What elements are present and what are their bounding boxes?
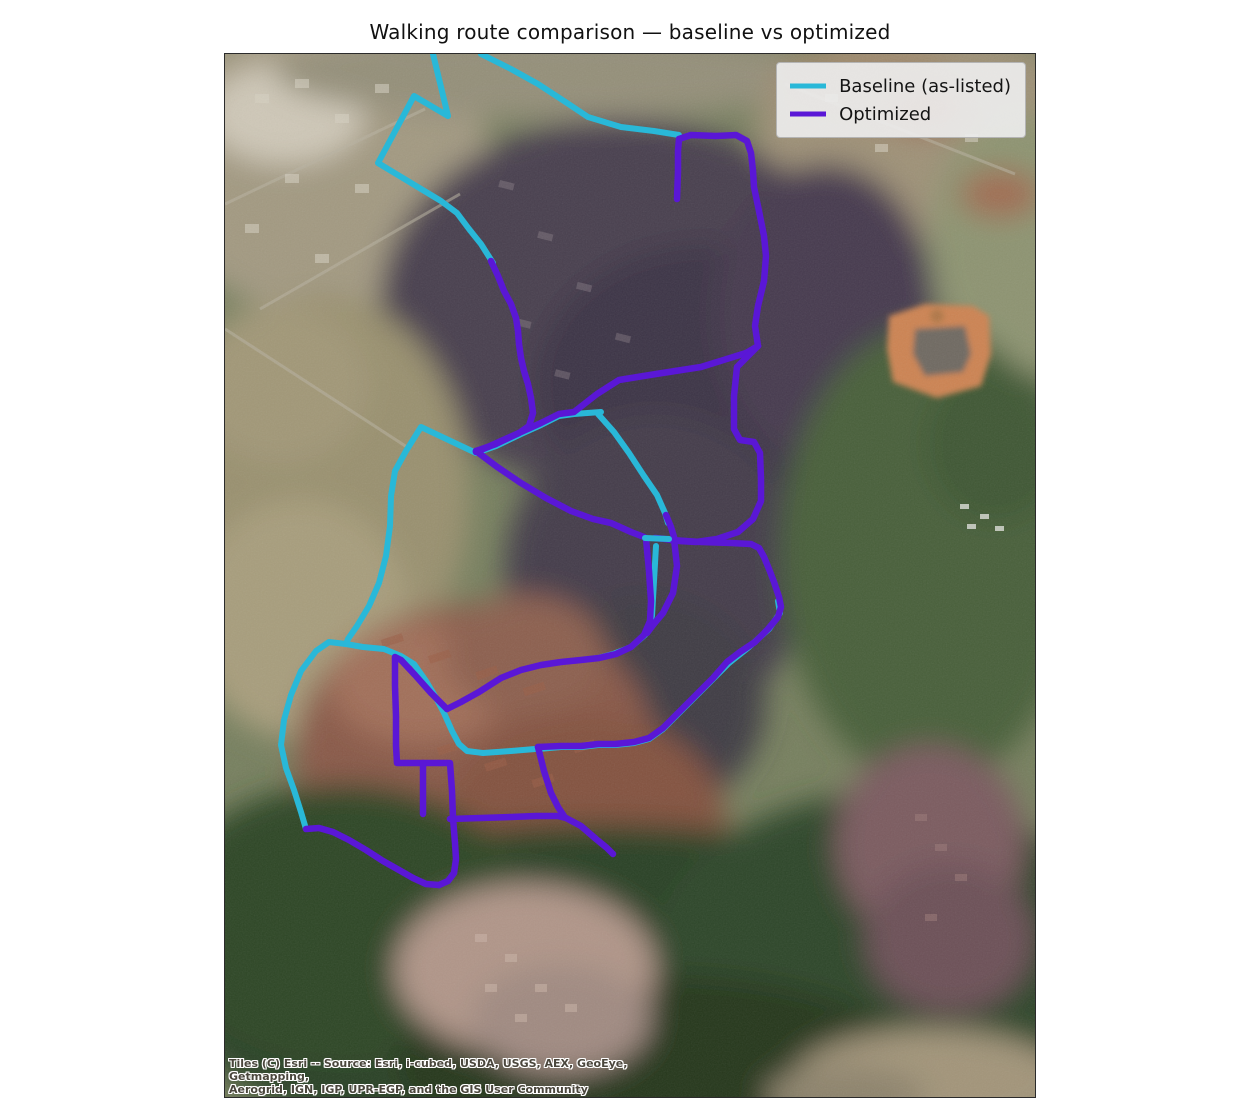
legend-label-optimized: Optimized [839,104,931,125]
baseline-route-junction-crossing [645,538,669,539]
figure: Walking route comparison — baseline vs o… [0,0,1260,1120]
map-canvas: Baseline (as-listed) Optimized Tiles (C)… [224,53,1036,1098]
legend-item-baseline: Baseline (as-listed) [789,72,1011,100]
attribution-line1: Tiles (C) Esri -- Source: Esri, i-cubed,… [229,1057,627,1083]
legend-label-baseline: Baseline (as-listed) [839,76,1011,97]
map-image [225,54,1036,1098]
tile-attribution: Tiles (C) Esri -- Source: Esri, i-cubed,… [229,1057,709,1096]
baseline-swatch-icon [789,82,827,90]
optimized-swatch-icon [789,110,827,118]
legend-item-optimized: Optimized [789,100,1011,128]
map-terrain [225,54,1036,1098]
attribution-line2: Aerogrid, IGN, IGP, UPR-EGP, and the GIS… [229,1083,588,1096]
page-title: Walking route comparison — baseline vs o… [224,20,1036,44]
legend: Baseline (as-listed) Optimized [776,62,1026,138]
